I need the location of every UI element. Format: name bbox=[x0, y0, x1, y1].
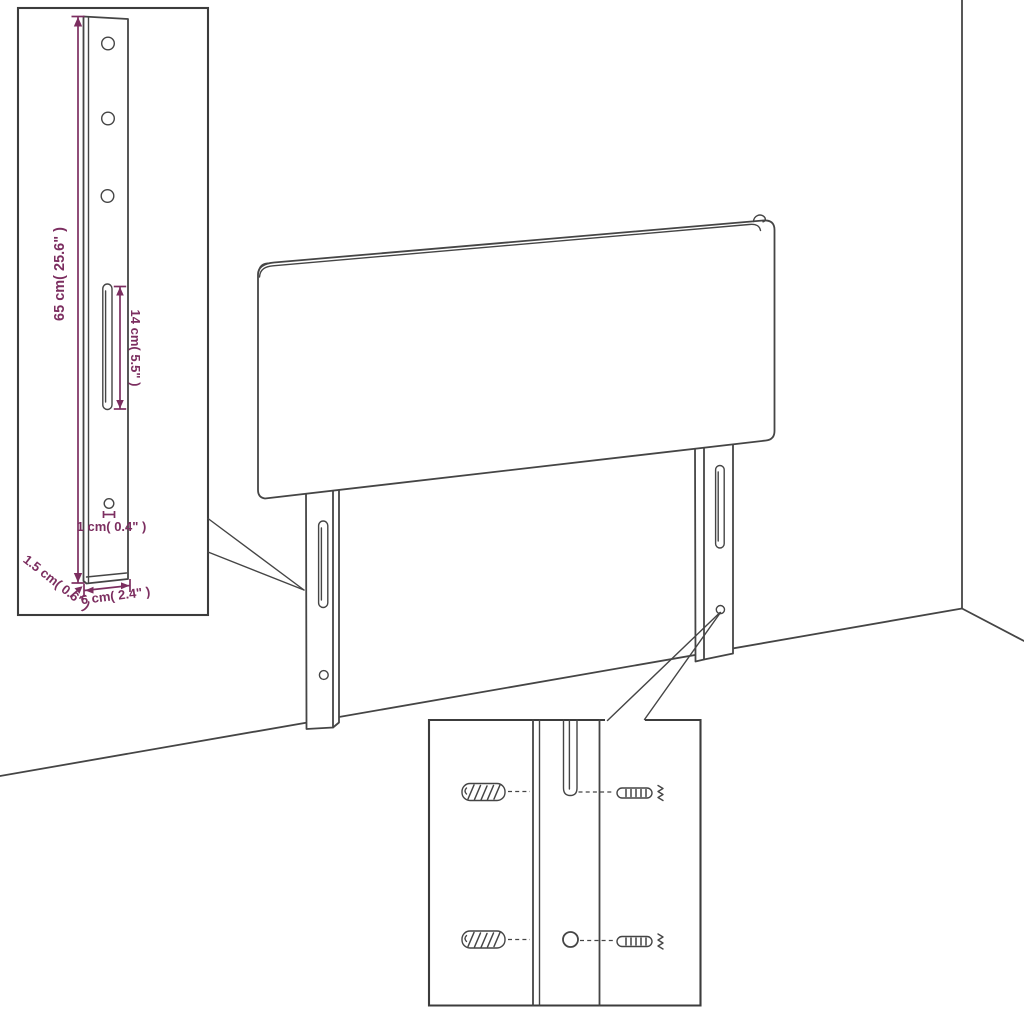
width-dimension-label: 6 cm( 2.4" ) bbox=[80, 584, 151, 607]
detail-box-leg-dimensions: 65 cm( 25.6" ) 14 cm( 5.5" ) 1 cm( 0.4" … bbox=[18, 8, 208, 615]
detail-box-2-fill bbox=[429, 720, 701, 1006]
right-leg-body bbox=[695, 444, 733, 662]
floor-wall-line-right bbox=[962, 609, 1024, 642]
assembly-diagram: 65 cm( 25.6" ) 14 cm( 5.5" ) 1 cm( 0.4" … bbox=[0, 0, 1024, 1024]
headboard-assembly-drawing: 65 cm( 25.6" ) 14 cm( 5.5" ) 1 cm( 0.4" … bbox=[0, 0, 1024, 1024]
callout-wedge-left-leg bbox=[208, 519, 304, 591]
headboard-left-leg bbox=[306, 487, 339, 730]
slot-length-dimension-label: 14 cm( 5.5" ) bbox=[128, 310, 143, 387]
hole-diameter-dimension-label: 1 cm( 0.4" ) bbox=[77, 519, 147, 534]
height-dimension bbox=[72, 17, 85, 584]
detail-box-mounting-hardware bbox=[429, 720, 701, 1006]
headboard-right-leg bbox=[695, 444, 733, 662]
height-dimension-label: 65 cm( 25.6" ) bbox=[52, 227, 68, 321]
